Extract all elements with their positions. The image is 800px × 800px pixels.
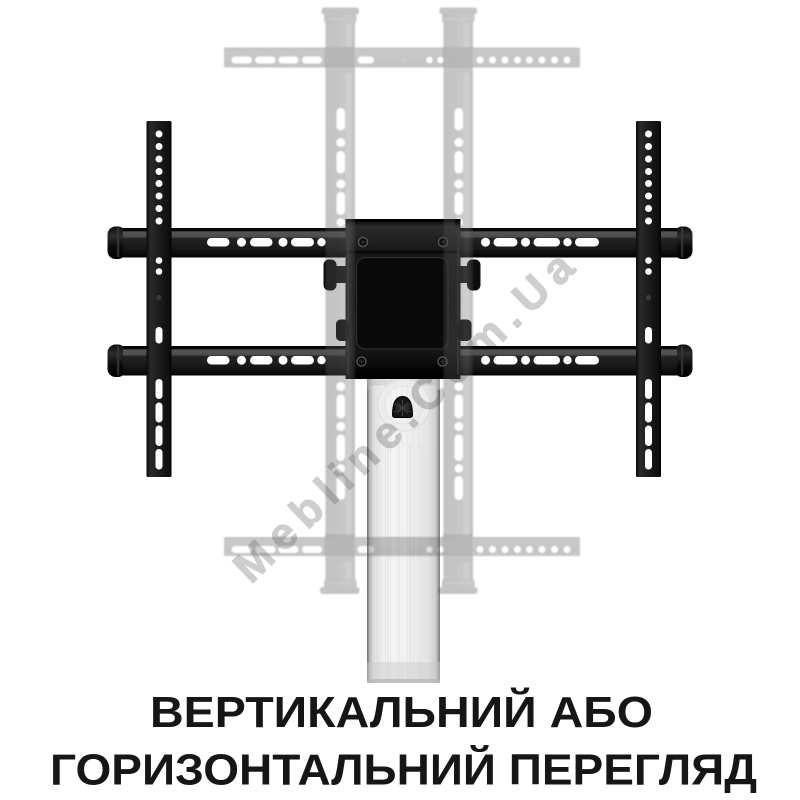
svg-text:ВЕРТИКАЛЬНИЙ АБО: ВЕРТИКАЛЬНИЙ АБО (150, 686, 653, 737)
svg-text:ГОРИЗОНТАЛЬНИЙ ПЕРЕГЛЯД: ГОРИЗОНТАЛЬНИЙ ПЕРЕГЛЯД (50, 744, 757, 795)
